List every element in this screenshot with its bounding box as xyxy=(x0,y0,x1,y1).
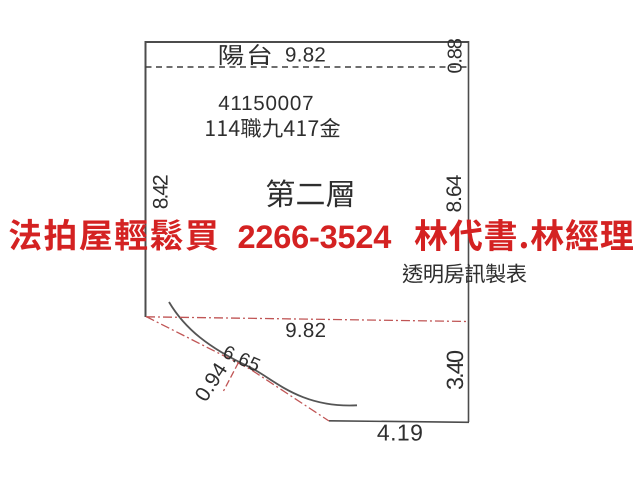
svg-text:9.82: 9.82 xyxy=(285,44,326,67)
svg-text:2266-3524: 2266-3524 xyxy=(238,219,392,255)
svg-text:8.42: 8.42 xyxy=(150,175,173,209)
svg-text:3.40: 3.40 xyxy=(442,350,468,390)
svg-text:41150007: 41150007 xyxy=(218,92,314,115)
svg-text:8.64: 8.64 xyxy=(443,174,466,212)
svg-text:9.82: 9.82 xyxy=(285,319,326,342)
svg-text:0.88: 0.88 xyxy=(445,38,467,73)
svg-text:4.19: 4.19 xyxy=(377,420,423,446)
svg-text:0.94: 0.94 xyxy=(191,359,233,406)
